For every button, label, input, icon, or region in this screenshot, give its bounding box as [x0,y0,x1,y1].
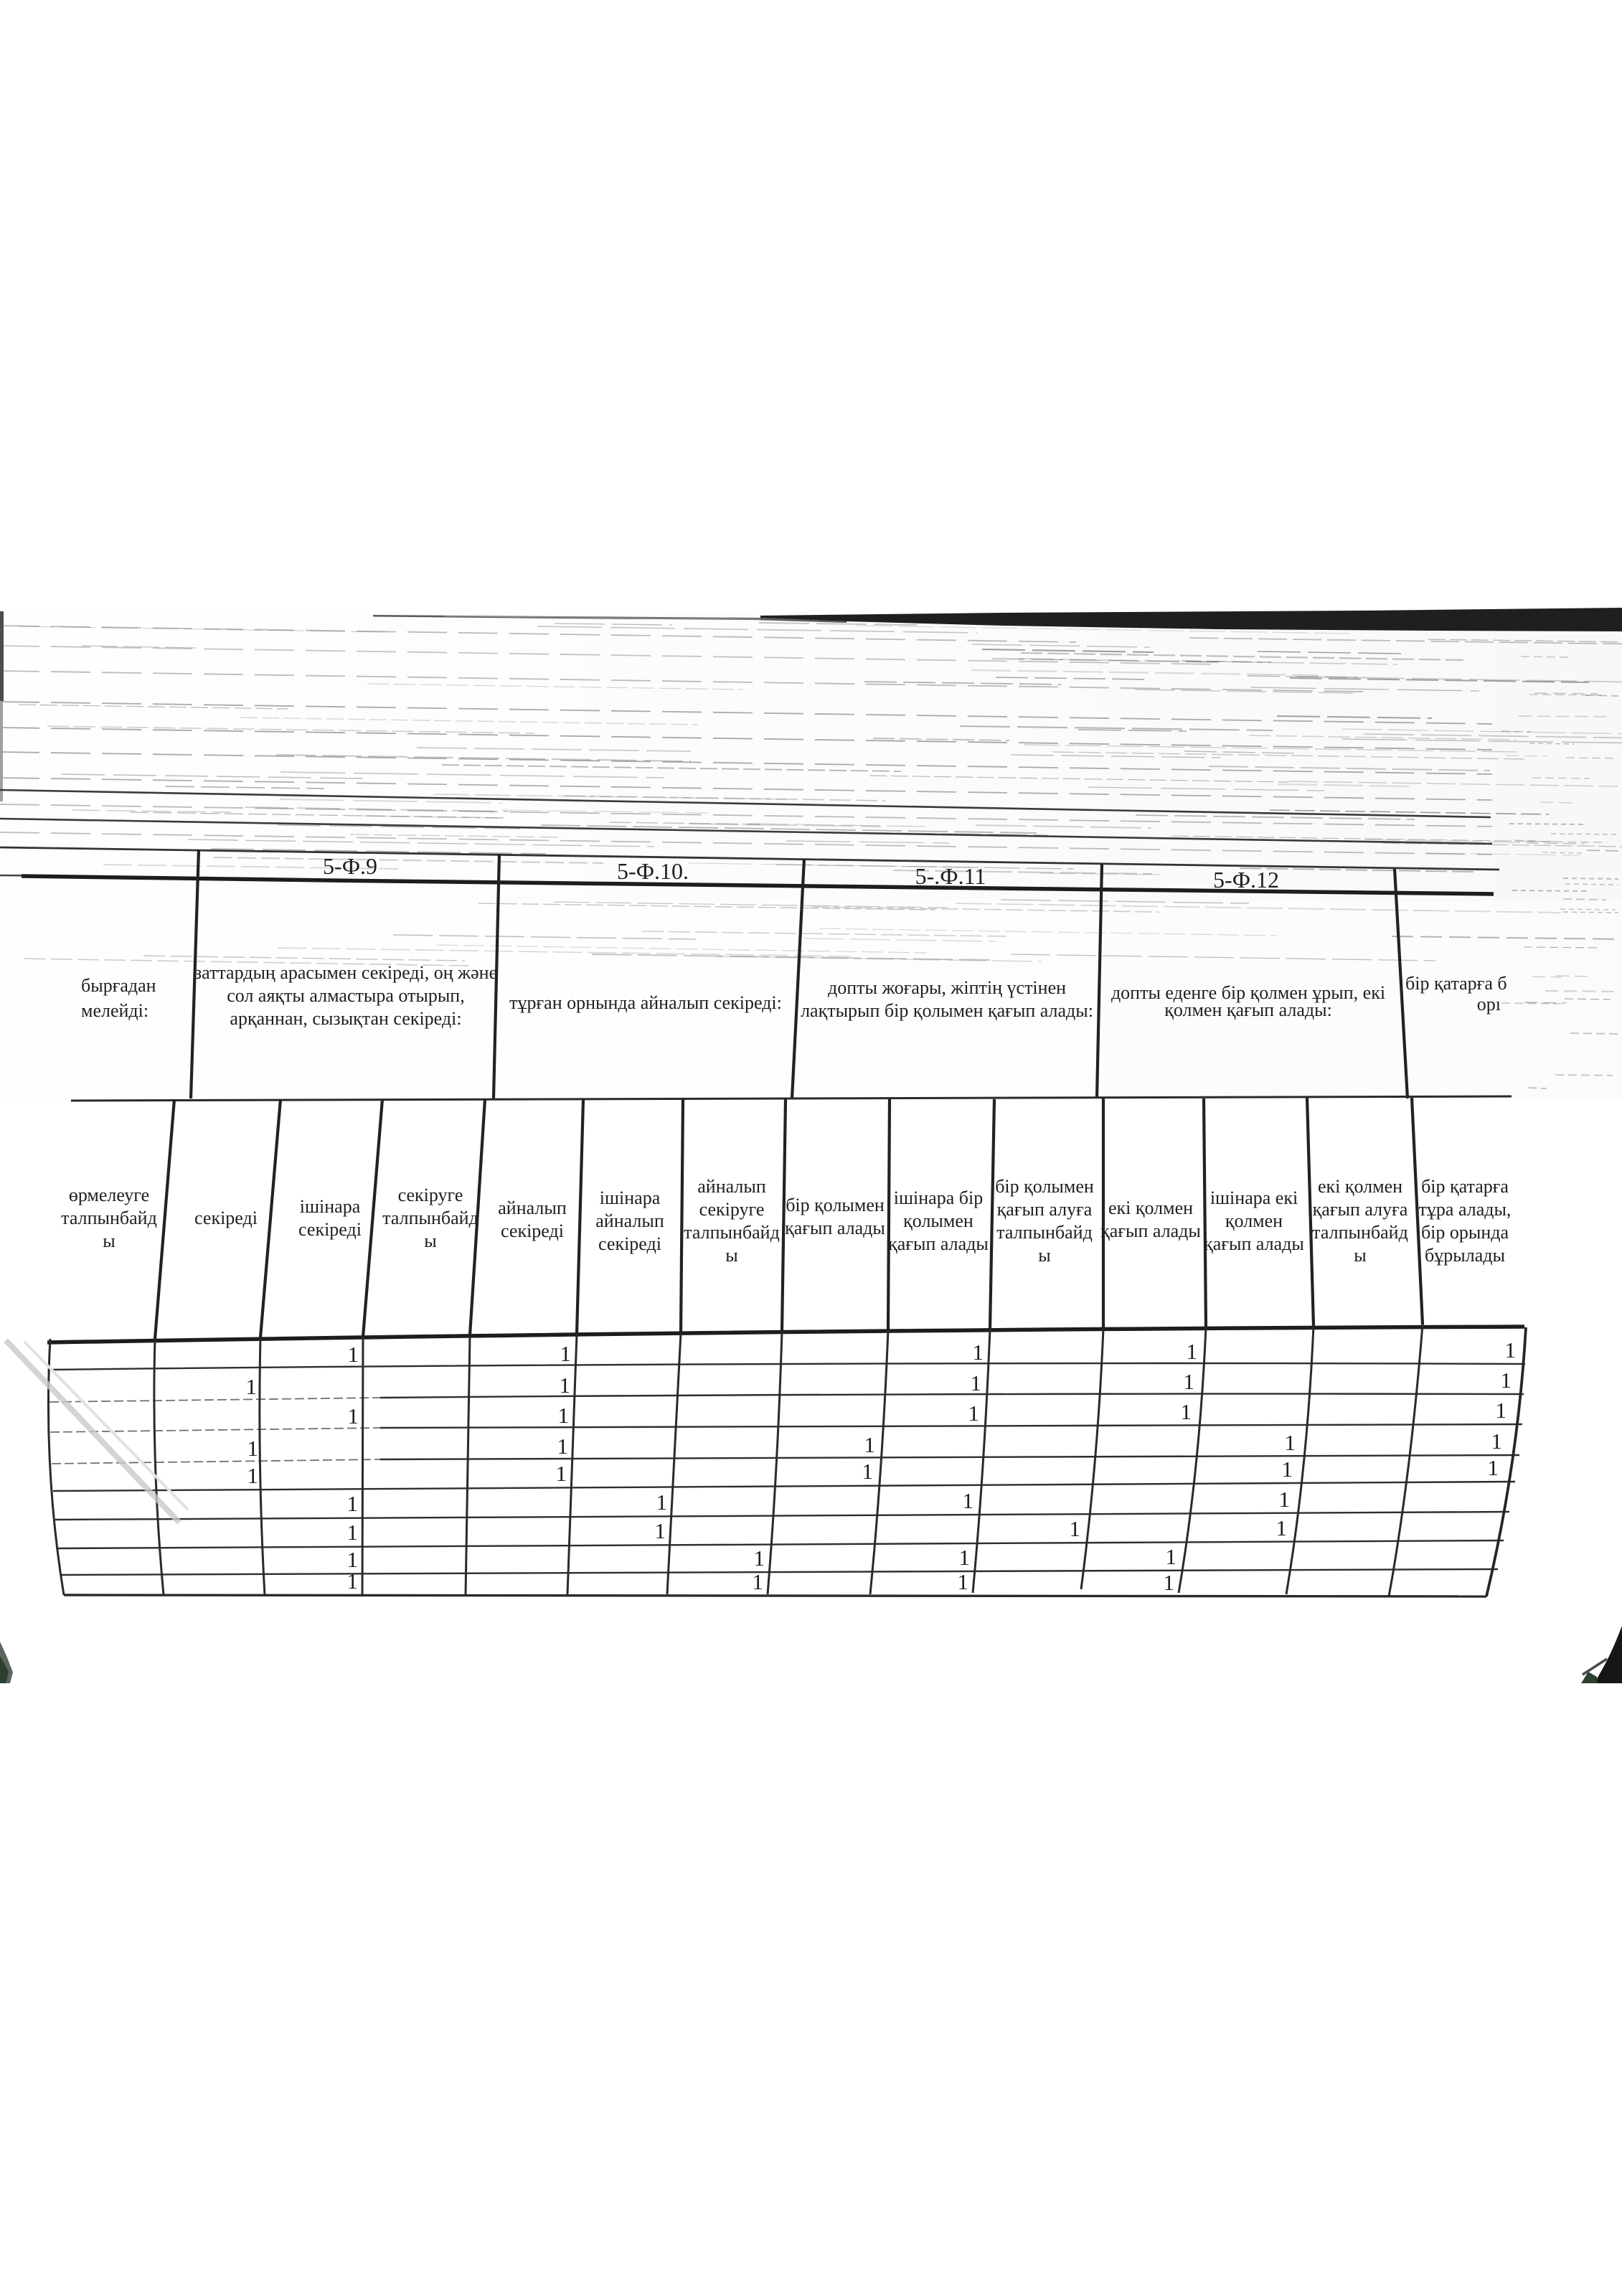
svg-text:қағып алуға: қағып алуға [1313,1199,1408,1220]
svg-text:1: 1 [348,1342,359,1367]
svg-text:1: 1 [247,1436,259,1461]
svg-text:қағып алады: қағып алады [1204,1233,1304,1254]
svg-text:1: 1 [1276,1515,1288,1540]
svg-text:1: 1 [347,1491,359,1516]
svg-text:талпынбайд: талпынбайд [61,1208,157,1228]
svg-text:бұрылады: бұрылады [1425,1245,1505,1266]
svg-text:1: 1 [1164,1570,1175,1595]
svg-text:1: 1 [655,1518,666,1543]
svg-text:1: 1 [1496,1398,1507,1423]
svg-text:қолымен: қолымен [903,1210,973,1231]
svg-text:секіреді: секіреді [298,1219,362,1240]
svg-text:орı: орı [1477,994,1501,1015]
svg-text:секіреді: секіреді [194,1208,258,1228]
svg-text:секіреді: секіреді [501,1220,564,1241]
svg-text:1: 1 [958,1569,969,1594]
svg-text:бір қолымен: бір қолымен [786,1195,885,1215]
svg-text:1: 1 [862,1459,874,1484]
svg-text:1: 1 [1505,1337,1517,1363]
svg-text:бір қатарға б: бір қатарға б [1405,973,1507,994]
svg-text:1: 1 [968,1401,980,1426]
svg-text:5-.Ф.11: 5-.Ф.11 [915,863,986,889]
svg-text:1: 1 [754,1545,765,1571]
svg-text:1: 1 [753,1569,764,1594]
svg-text:секіруге: секіруге [398,1185,463,1205]
svg-text:ішінара: ішінара [600,1187,661,1208]
svg-text:ішінара екі: ішінара екі [1210,1187,1298,1208]
svg-text:1: 1 [864,1432,876,1457]
svg-text:талпынбайд: талпынбайд [996,1222,1093,1243]
svg-text:1: 1 [1070,1516,1081,1541]
svg-text:1: 1 [556,1461,567,1486]
svg-text:арқаннан, сызықтан секіреді:: арқаннан, сызықтан секіреді: [230,1008,461,1029]
svg-text:айналып: айналып [697,1176,766,1197]
svg-text:1: 1 [1279,1487,1291,1512]
svg-text:ішінара бір: ішінара бір [894,1187,983,1208]
svg-text:секіреді: секіреді [598,1233,661,1254]
svg-text:тұрған орнында айналып секіред: тұрған орнында айналып секіреді: [509,992,782,1013]
svg-text:1: 1 [1501,1368,1512,1393]
svg-text:1: 1 [1184,1369,1195,1394]
svg-text:айналып: айналып [498,1198,567,1218]
svg-text:1: 1 [973,1340,984,1365]
svg-text:тұра алады,: тұра алады, [1419,1199,1512,1220]
svg-text:1: 1 [963,1488,974,1513]
svg-text:қағып алады: қағып алады [1100,1220,1201,1241]
svg-text:ы: ы [103,1231,115,1251]
svg-text:1: 1 [959,1545,971,1570]
svg-text:өрмелеуге: өрмелеуге [69,1185,149,1205]
svg-text:айналып: айналып [595,1210,664,1231]
svg-text:1: 1 [1181,1399,1192,1424]
svg-text:ы: ы [1354,1245,1366,1266]
svg-text:допты жоғары, жіптің үстінен: допты жоғары, жіптің үстінен [828,977,1066,998]
svg-text:қолмен: қолмен [1225,1210,1283,1231]
svg-text:мелейді:: мелейді: [81,1000,148,1021]
svg-text:ы: ы [424,1231,436,1251]
svg-text:талпынбайд: талпынбайд [1312,1222,1408,1243]
svg-text:1: 1 [1488,1455,1499,1480]
svg-text:1: 1 [1491,1429,1503,1454]
svg-text:1: 1 [347,1568,359,1594]
svg-text:1: 1 [1285,1430,1296,1455]
svg-text:ы: ы [1038,1245,1050,1266]
svg-text:екі қолмен: екі қолмен [1318,1176,1402,1197]
svg-text:сол аяқты алмастыра отырып,: сол аяқты алмастыра отырып, [227,985,464,1006]
svg-text:қағып алуға: қағып алуға [997,1199,1093,1220]
svg-text:1: 1 [347,1520,359,1545]
svg-text:бір орында: бір орында [1421,1222,1509,1243]
svg-text:лақтырып бір қолымен қағып ала: лақтырып бір қолымен қағып алады: [801,1000,1093,1021]
svg-text:талпынбайд: талпынбайд [684,1222,780,1243]
svg-text:қолмен қағып алады:: қолмен қағып алады: [1164,999,1332,1020]
svg-text:1: 1 [246,1374,258,1399]
svg-text:қағып алады: қағып алады [888,1233,989,1254]
svg-text:1: 1 [560,1373,571,1398]
svg-text:1: 1 [348,1403,359,1429]
svg-text:1: 1 [558,1403,570,1428]
svg-text:1: 1 [557,1434,569,1459]
svg-text:ы: ы [725,1245,737,1266]
svg-text:1: 1 [247,1463,259,1488]
svg-text:бір қолымен: бір қолымен [995,1176,1094,1197]
svg-text:қағып алады: қағып алады [785,1218,885,1238]
svg-text:1: 1 [560,1341,572,1366]
svg-text:бір қатарға: бір қатарға [1421,1176,1509,1197]
svg-text:секіруге: секіруге [699,1199,765,1220]
svg-text:1: 1 [656,1490,668,1515]
svg-text:1: 1 [971,1370,982,1396]
svg-text:1: 1 [1166,1544,1177,1569]
svg-text:5-Ф.9: 5-Ф.9 [323,853,377,879]
svg-text:екі қолмен: екі қолмен [1108,1198,1193,1218]
svg-text:заттардың арасымен секіреді, о: заттардың арасымен секіреді, оң және [194,962,497,983]
svg-text:5-Ф.10.: 5-Ф.10. [617,858,689,884]
svg-text:1: 1 [1187,1339,1198,1364]
svg-text:ішінара: ішінара [300,1196,361,1217]
svg-text:талпынбайд: талпынбайд [382,1208,478,1228]
svg-text:1: 1 [1282,1457,1293,1482]
svg-text:бырғадан: бырғадан [81,975,156,996]
svg-text:5-Ф.12: 5-Ф.12 [1213,867,1279,893]
